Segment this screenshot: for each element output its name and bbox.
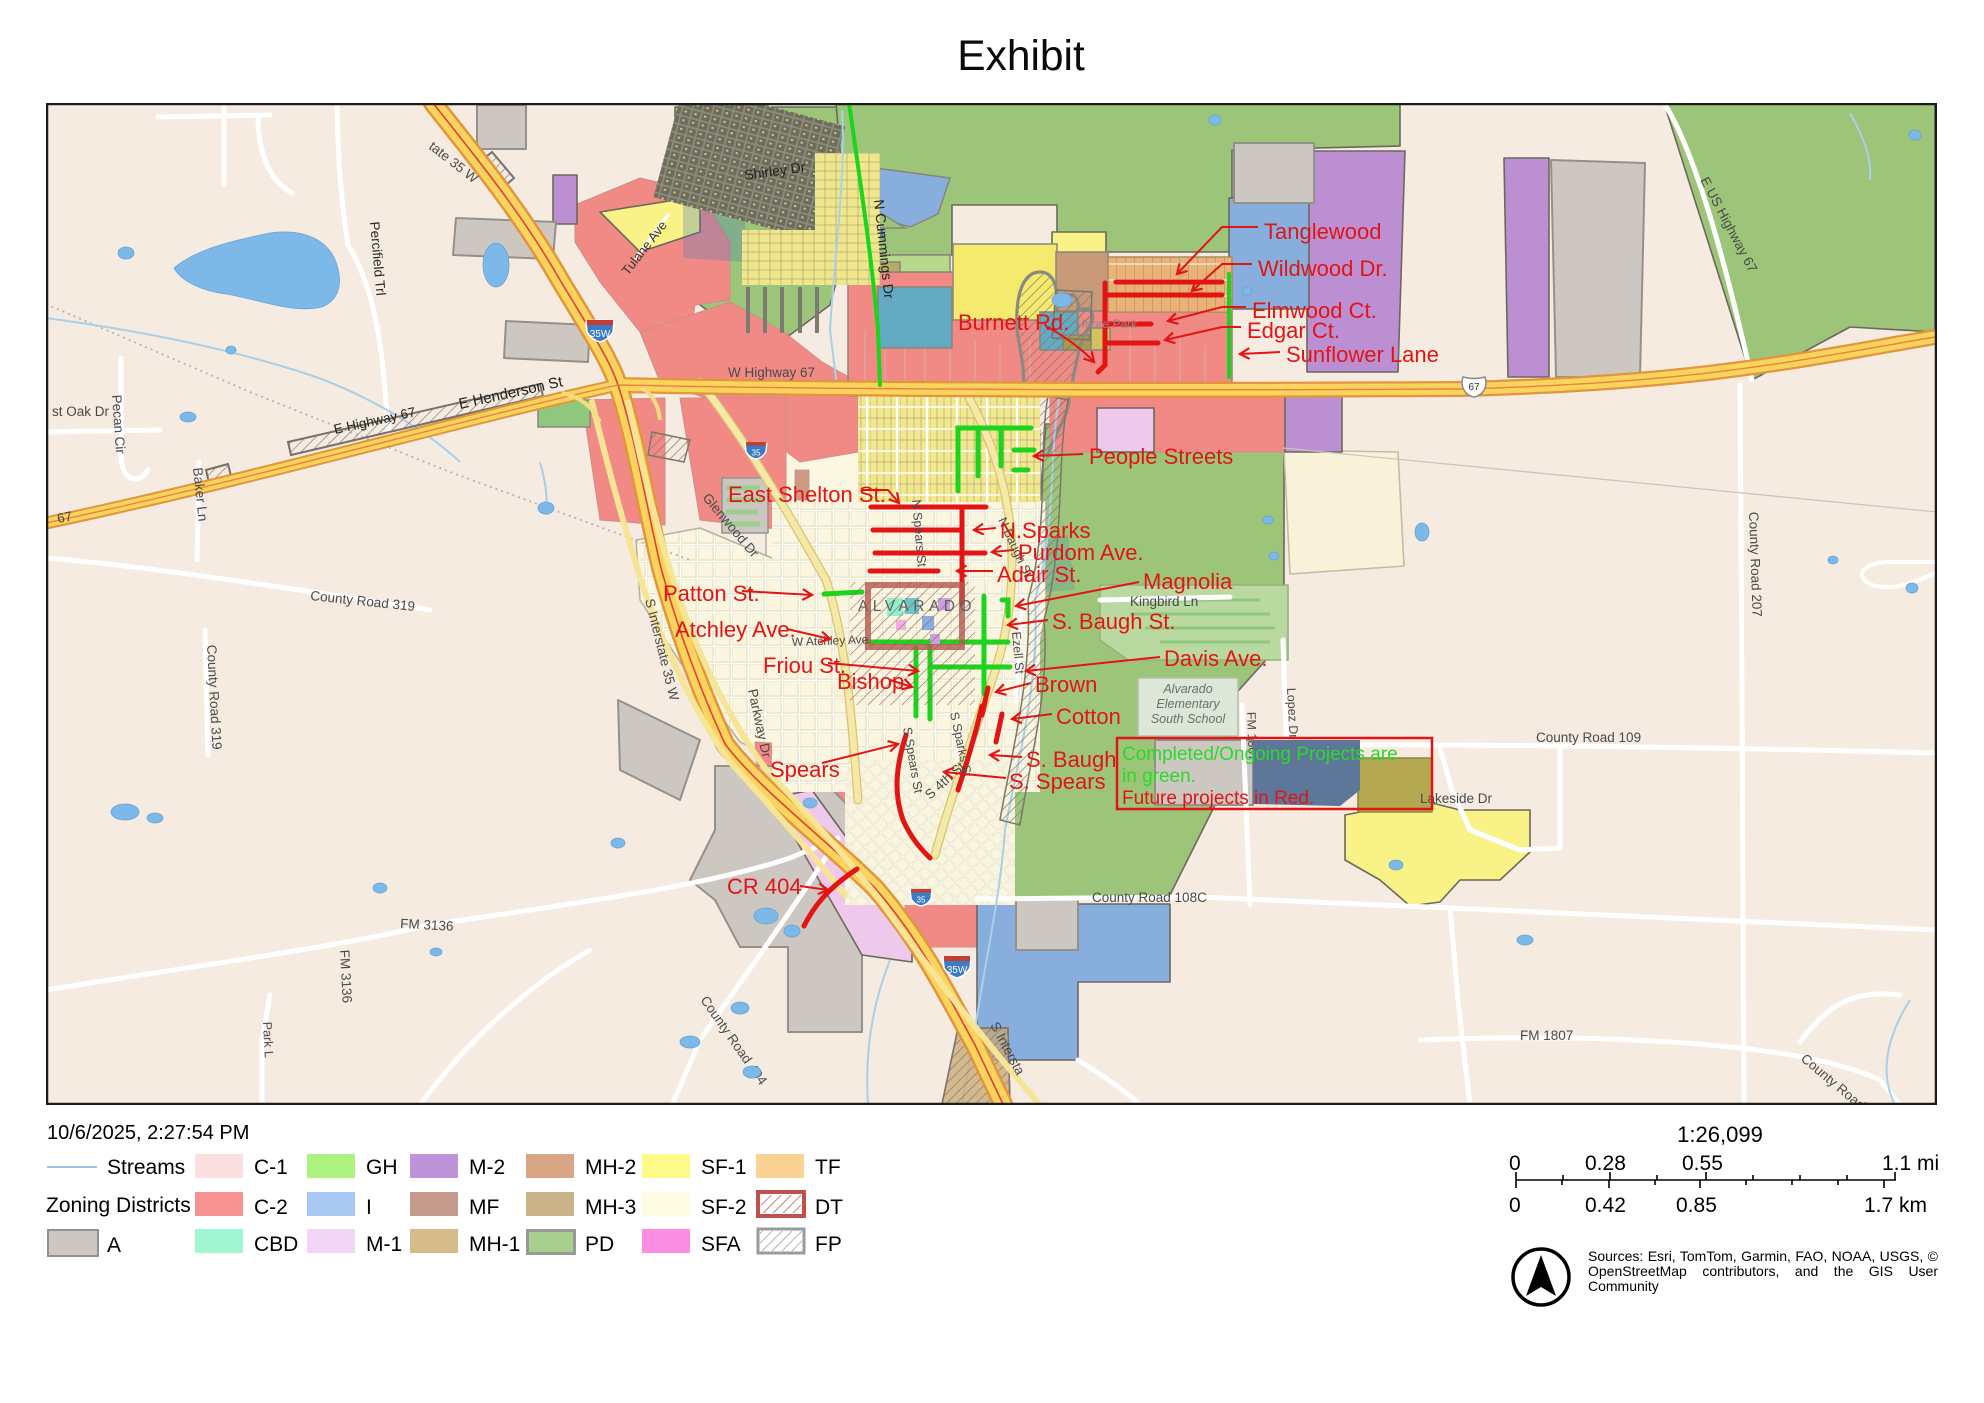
svg-text:Magnolia: Magnolia	[1143, 569, 1233, 594]
svg-text:35: 35	[916, 895, 926, 904]
svg-text:Davis Ave.: Davis Ave.	[1164, 646, 1268, 671]
svg-text:0.42: 0.42	[1585, 1194, 1626, 1217]
svg-text:Lopez Dr: Lopez Dr	[1284, 687, 1301, 738]
svg-text:Park L: Park L	[260, 1021, 276, 1058]
svg-text:Moore Park: Moore Park	[1075, 317, 1138, 331]
svg-text:67: 67	[1468, 382, 1480, 393]
svg-text:S. Spears: S. Spears	[1009, 769, 1106, 794]
svg-text:Adair St.: Adair St.	[997, 562, 1081, 587]
svg-text:in green.: in green.	[1122, 766, 1196, 787]
svg-text:35W: 35W	[947, 965, 968, 976]
svg-text:S. Baugh St.: S. Baugh St.	[1052, 609, 1176, 634]
svg-text:Wildwood Dr.: Wildwood Dr.	[1258, 256, 1388, 281]
svg-text:st Oak Dr: st Oak Dr	[52, 404, 110, 419]
svg-text:Alvarado: Alvarado	[1162, 682, 1212, 696]
svg-text:35: 35	[751, 448, 761, 457]
svg-text:0: 0	[1509, 1152, 1521, 1175]
svg-text:County Road 108C: County Road 108C	[1092, 890, 1207, 905]
svg-text:County Road 109: County Road 109	[1536, 730, 1641, 745]
svg-text:67: 67	[56, 509, 73, 526]
svg-text:Cotton: Cotton	[1056, 704, 1121, 729]
svg-text:Completed/Ongoing Projects are: Completed/Ongoing Projects are	[1122, 744, 1398, 765]
svg-text:Patton St.: Patton St.	[663, 581, 760, 606]
svg-text:Burnett Rd.: Burnett Rd.	[958, 310, 1069, 335]
svg-text:0.55: 0.55	[1682, 1152, 1723, 1175]
svg-text:Future projects in Red.: Future projects in Red.	[1122, 788, 1314, 809]
svg-text:Friou St.: Friou St.	[763, 653, 846, 678]
svg-text:Kingbird Ln: Kingbird Ln	[1130, 594, 1198, 609]
svg-text:1.1 mi: 1.1 mi	[1882, 1152, 1939, 1175]
svg-text:W Atchley Ave: W Atchley Ave	[792, 632, 869, 649]
svg-text:1.7 km: 1.7 km	[1864, 1194, 1927, 1217]
svg-text:FM 1807: FM 1807	[1520, 1028, 1573, 1043]
svg-text:East Shelton St.: East Shelton St.	[728, 482, 886, 507]
svg-text:Elementary: Elementary	[1156, 697, 1220, 711]
svg-text:Spears: Spears	[770, 757, 840, 782]
svg-text:0.85: 0.85	[1676, 1194, 1717, 1217]
svg-text:CR 404: CR 404	[727, 874, 802, 899]
svg-text:FM 3136: FM 3136	[400, 916, 454, 934]
svg-text:Brown: Brown	[1035, 672, 1097, 697]
svg-text:Tanglewood: Tanglewood	[1264, 219, 1381, 244]
svg-text:Bishop: Bishop	[837, 669, 904, 694]
svg-text:Edgar Ct.: Edgar Ct.	[1247, 318, 1340, 343]
svg-text:ALVARADO: ALVARADO	[858, 598, 976, 615]
svg-text:South School: South School	[1151, 712, 1227, 726]
svg-text:W Highway 67: W Highway 67	[728, 365, 815, 380]
svg-text:FM 3136: FM 3136	[337, 949, 355, 1003]
svg-text:Sunflower Lane: Sunflower Lane	[1286, 342, 1439, 367]
svg-text:0: 0	[1509, 1194, 1521, 1217]
svg-text:35W: 35W	[590, 329, 611, 340]
svg-text:Atchley Ave.: Atchley Ave.	[675, 617, 796, 642]
svg-text:People Streets: People Streets	[1089, 444, 1233, 469]
svg-text:0.28: 0.28	[1585, 1152, 1626, 1175]
